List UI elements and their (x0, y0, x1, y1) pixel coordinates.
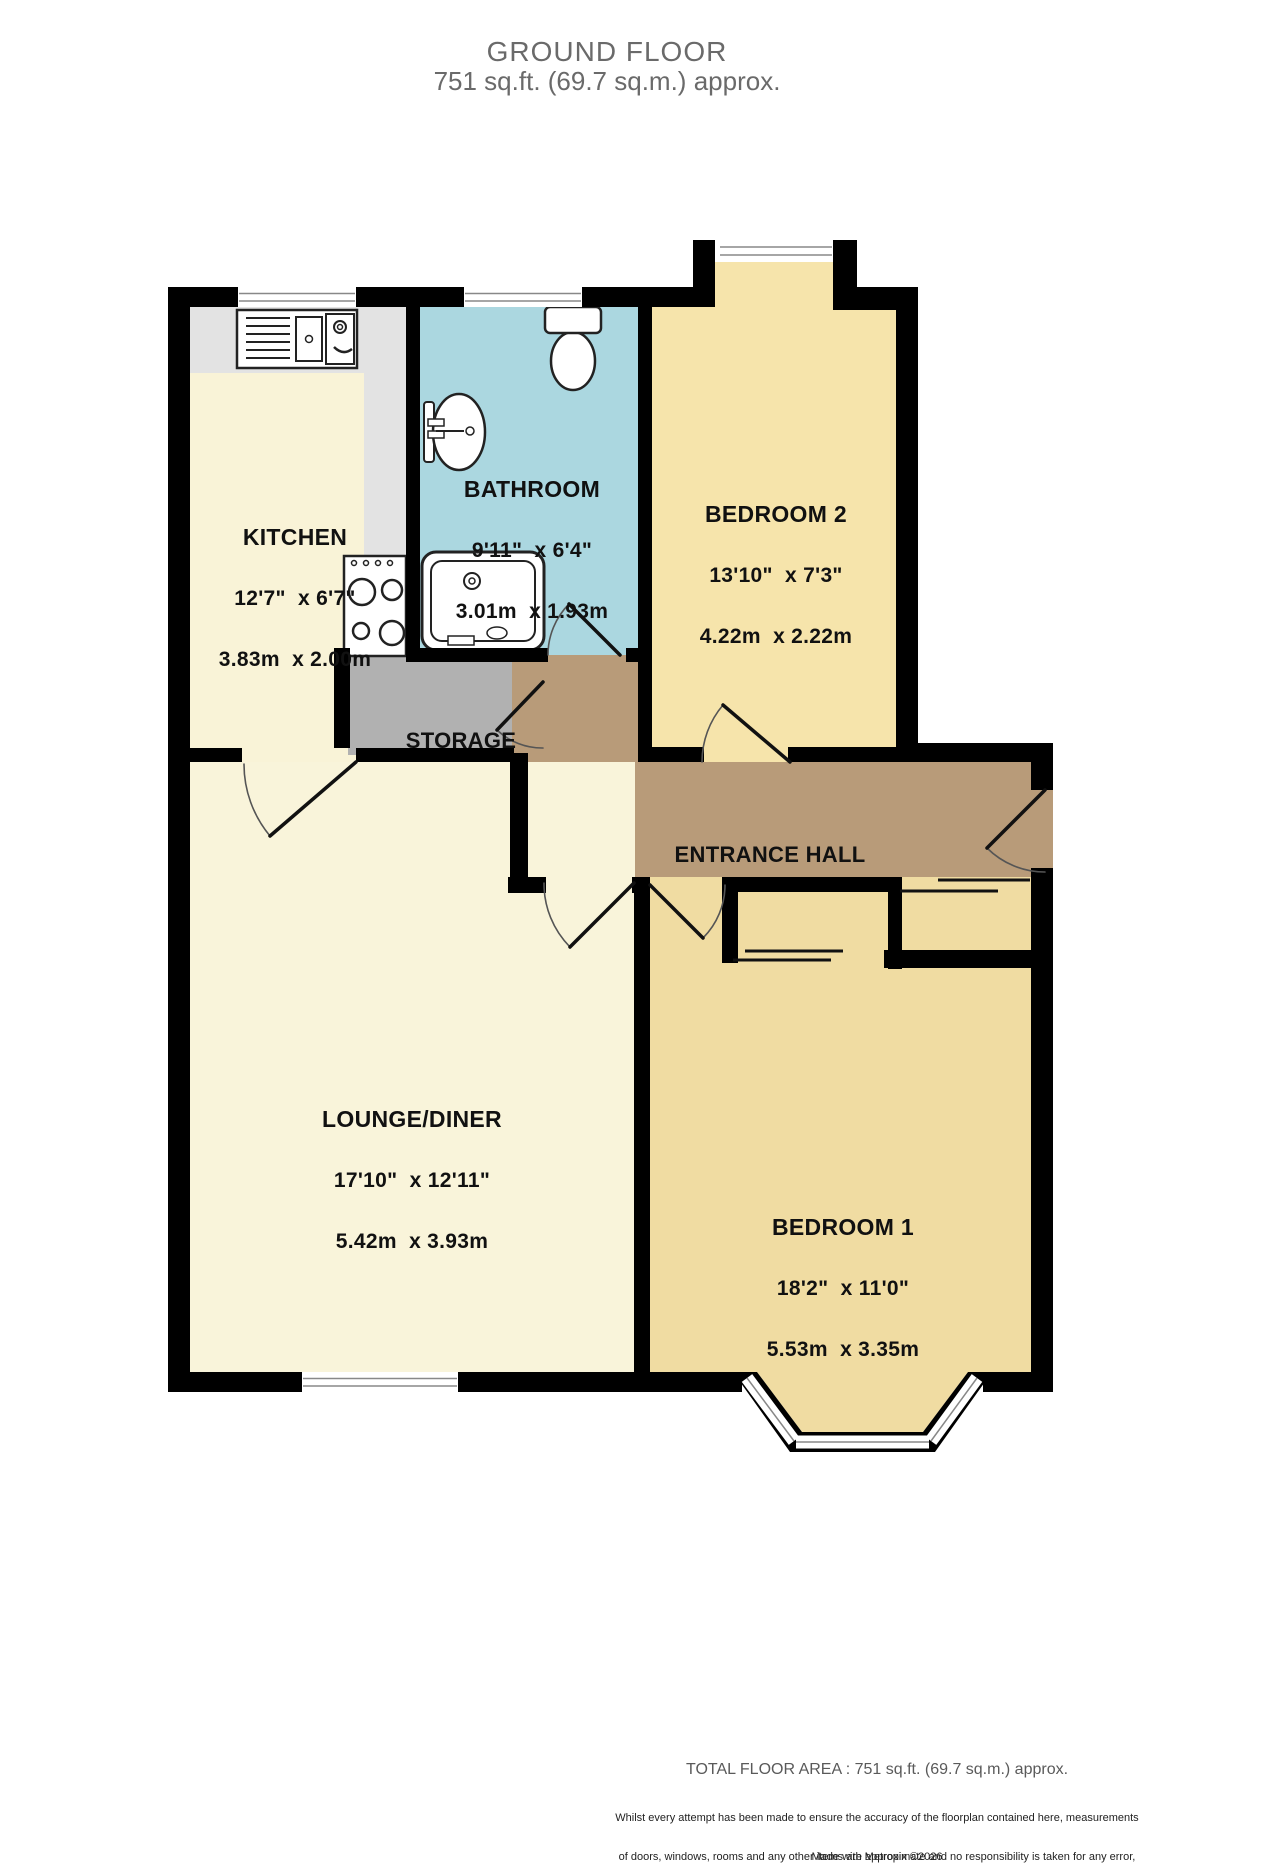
room-name: ENTRANCE HALL (675, 842, 866, 867)
storage-label: STORAGE (406, 692, 517, 789)
kitchen-window (238, 287, 356, 307)
room-name: LOUNGE/DINER (322, 1107, 502, 1132)
floors (190, 262, 1053, 1432)
basin-drain (466, 427, 474, 435)
lounge-window (302, 1372, 458, 1392)
lounge-label: LOUNGE/DINER 17'10" x 12'11" 5.42m x 3.9… (322, 1071, 502, 1290)
room-dims-metric: 5.53m x 3.35m (767, 1337, 919, 1362)
room-name: BATHROOM (456, 477, 608, 502)
room-dims-imperial: 12'7" x 6'7" (219, 586, 371, 611)
page-title: GROUND FLOOR (487, 36, 728, 68)
room-dims-imperial: 18'2" x 11'0" (767, 1276, 919, 1301)
total-floor-area: TOTAL FLOOR AREA : 751 sq.ft. (69.7 sq.m… (686, 1761, 1068, 1779)
basin-tap-1 (428, 419, 444, 426)
entrance-hall-label: ENTRANCE HALL (675, 806, 866, 903)
room-name: STORAGE (406, 728, 517, 753)
room-dims-imperial: 13'10" x 7'3" (700, 563, 852, 588)
bedroom2-label: BEDROOM 2 13'10" x 7'3" 4.22m x 2.22m (700, 466, 852, 685)
room-dims-imperial: 17'10" x 12'11" (322, 1168, 502, 1193)
room-dims-metric: 4.22m x 2.22m (700, 624, 852, 649)
room-dims-imperial: 9'11" x 6'4" (456, 538, 608, 563)
floorplan-page: GROUND FLOOR 751 sq.ft. (69.7 sq.m.) app… (0, 0, 1280, 1865)
floorplan-drawing (0, 0, 1280, 1865)
bathroom-label: BATHROOM 9'11" x 6'4" 3.01m x 1.93m (456, 441, 608, 660)
kitchen-sink (237, 310, 357, 368)
room-dims-metric: 3.83m x 2.00m (219, 647, 371, 672)
bedroom1-label: BEDROOM 1 18'2" x 11'0" 5.53m x 3.35m (767, 1179, 919, 1398)
kitchen-label: KITCHEN 12'7" x 6'7" 3.83m x 2.00m (219, 489, 371, 708)
page-subtitle: 751 sq.ft. (69.7 sq.m.) approx. (434, 66, 781, 97)
room-name: BEDROOM 1 (767, 1215, 919, 1240)
toilet-cistern (545, 307, 601, 333)
bedroom2-window (719, 240, 833, 262)
room-name: BEDROOM 2 (700, 502, 852, 527)
room-dims-metric: 3.01m x 1.93m (456, 599, 608, 624)
room-name: KITCHEN (219, 525, 371, 550)
room-dims-metric: 5.42m x 3.93m (322, 1229, 502, 1254)
sink-half-bowl (296, 317, 322, 361)
basin-tap-2 (428, 431, 444, 438)
toilet-bowl (551, 332, 595, 390)
metropix-credit: Made with Metropix ©2026 (811, 1851, 942, 1863)
bathroom-window (464, 287, 582, 307)
disclaimer-line: Whilst every attempt has been made to en… (612, 1812, 1141, 1825)
